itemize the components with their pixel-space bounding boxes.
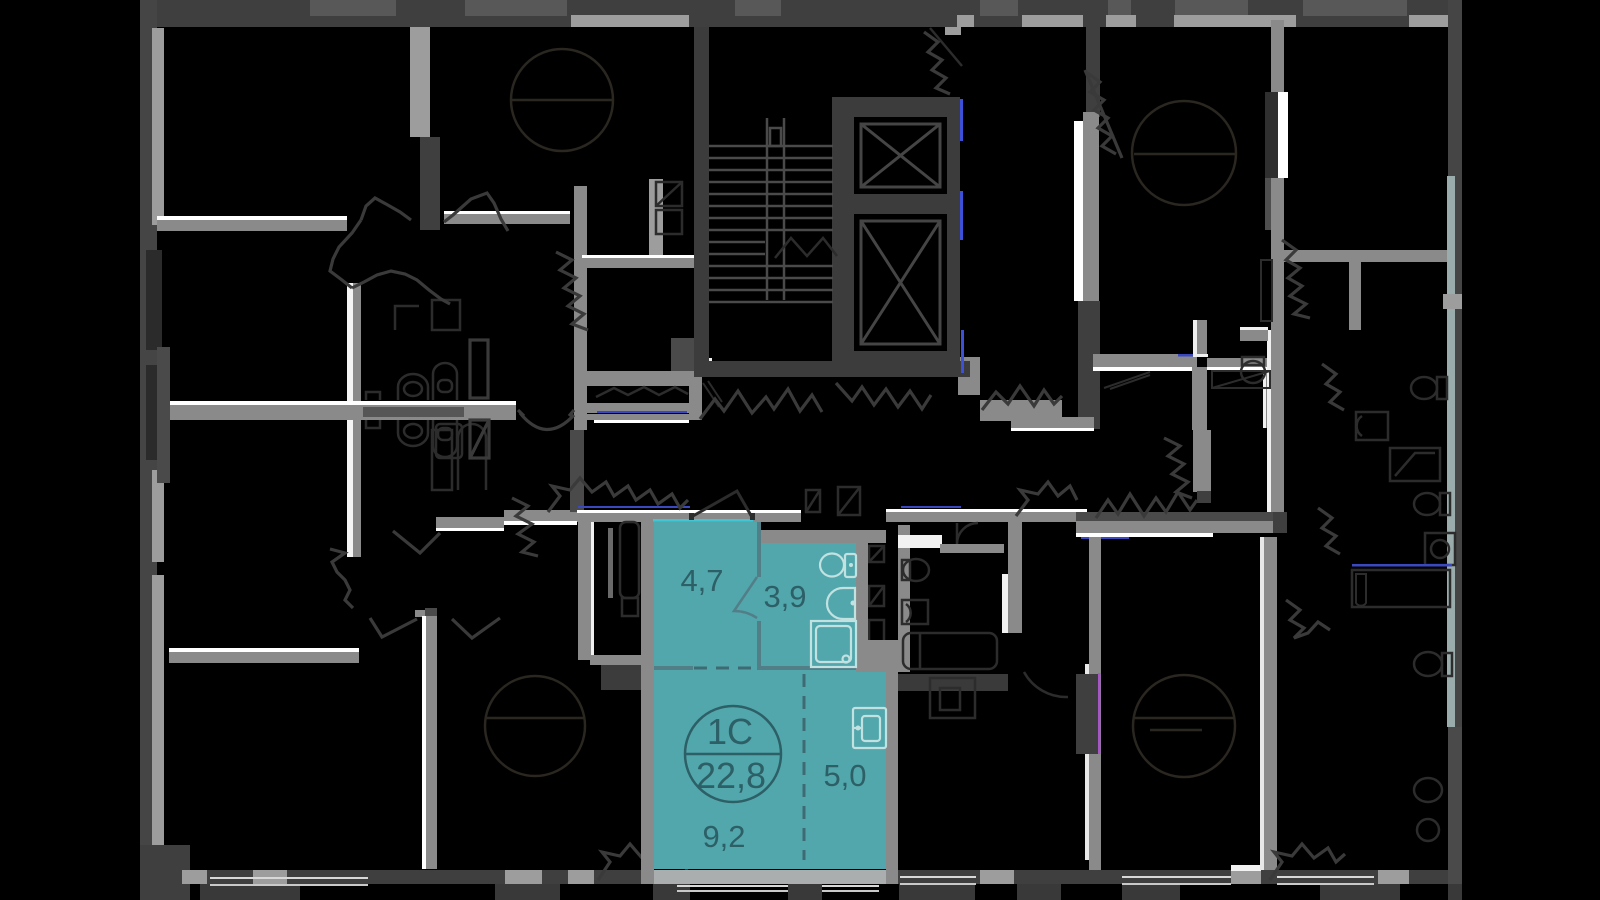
- svg-text:9,2: 9,2: [702, 819, 745, 854]
- svg-text:22,8: 22,8: [696, 755, 766, 796]
- svg-text:4,7: 4,7: [680, 563, 723, 598]
- svg-text:5,0: 5,0: [823, 758, 866, 793]
- svg-text:1С: 1С: [707, 711, 753, 752]
- svg-text:3,9: 3,9: [763, 579, 806, 614]
